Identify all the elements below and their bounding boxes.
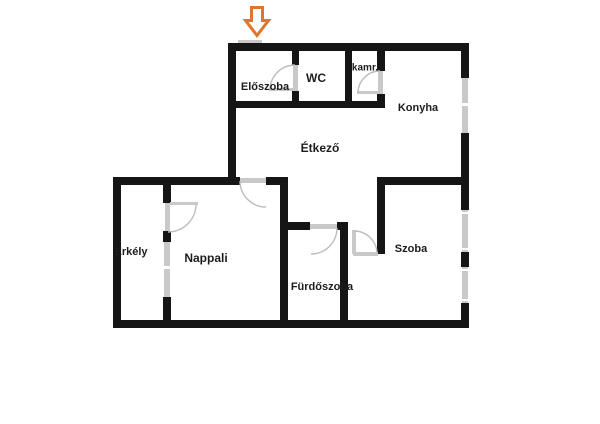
door-arc-erkely <box>168 204 196 232</box>
room-label-furdoszoba: Fürdőszoba <box>291 281 353 293</box>
room-label-erkely: Erkély <box>114 246 147 258</box>
room-label-nappali: Nappali <box>184 251 227 265</box>
room-label-konyha: Konyha <box>398 102 438 114</box>
door-arc-nappali <box>240 181 266 207</box>
room-label-eloszoba: Előszoba <box>241 81 289 93</box>
door-arcs-layer <box>0 0 600 424</box>
door-arc-szoba <box>354 231 377 254</box>
door-arc-kamra <box>358 71 380 93</box>
door-arc-furdoszoba <box>311 228 337 254</box>
room-label-etkezo: Étkező <box>301 141 340 155</box>
room-label-wc: WC <box>306 71 326 85</box>
floorplan-canvas: Előszoba WC kamr. Konyha Étkező Erkély N… <box>0 0 600 424</box>
entrance-arrow-icon <box>246 8 269 36</box>
room-label-kamra: kamr. <box>352 63 378 74</box>
room-label-szoba: Szoba <box>395 243 427 255</box>
